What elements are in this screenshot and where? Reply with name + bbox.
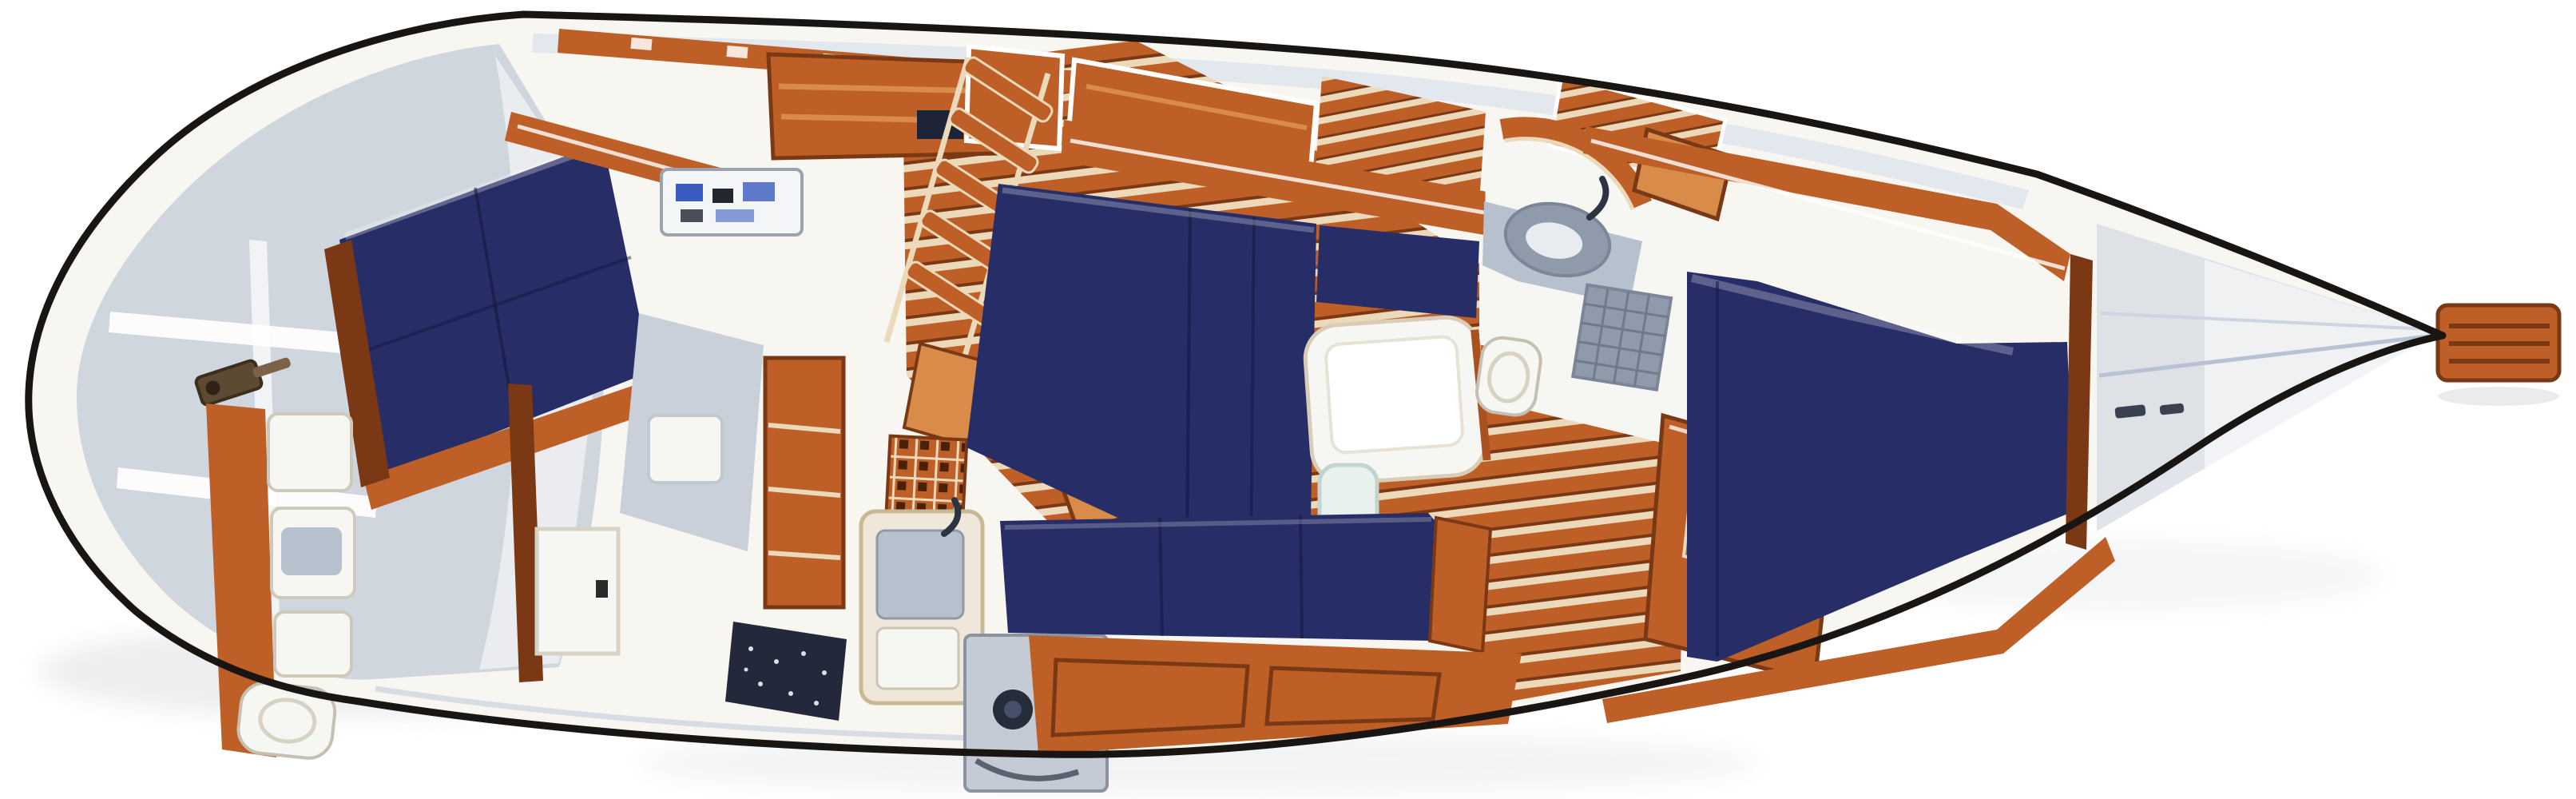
floorplan-svg: stern lazarette with molded shelves and … [0, 0, 2576, 799]
head-toilet [1475, 335, 1543, 417]
aft-head-door-handle [596, 580, 608, 598]
table-leaf [1325, 336, 1463, 453]
yacht-floorplan-illustration: stern lazarette with molded shelves and … [0, 0, 2576, 799]
sink-basin [877, 531, 963, 618]
stbd-settee-arm [1430, 518, 1490, 652]
salon: salon with port L-settee, starboard sett… [966, 120, 1522, 754]
shower-grate [1573, 285, 1671, 390]
stbd-settee-seam [1300, 515, 1302, 638]
salon-table [1303, 315, 1487, 485]
stbd-settee-cushion [1000, 513, 1438, 641]
aft-head-sink-basin [281, 527, 342, 575]
aft-vanity-sink [649, 415, 722, 483]
bowsprit-shadow [2438, 387, 2559, 406]
aft-head-locker [268, 414, 351, 491]
stove-burner-center [1004, 701, 1022, 718]
sink-drainboard [877, 628, 959, 689]
port-settee-bench [1316, 225, 1479, 318]
bowsprit: bowsprit anchor platform [2438, 305, 2559, 406]
aft-head-drawer [275, 612, 351, 676]
aft-shelf-unit [765, 358, 843, 607]
